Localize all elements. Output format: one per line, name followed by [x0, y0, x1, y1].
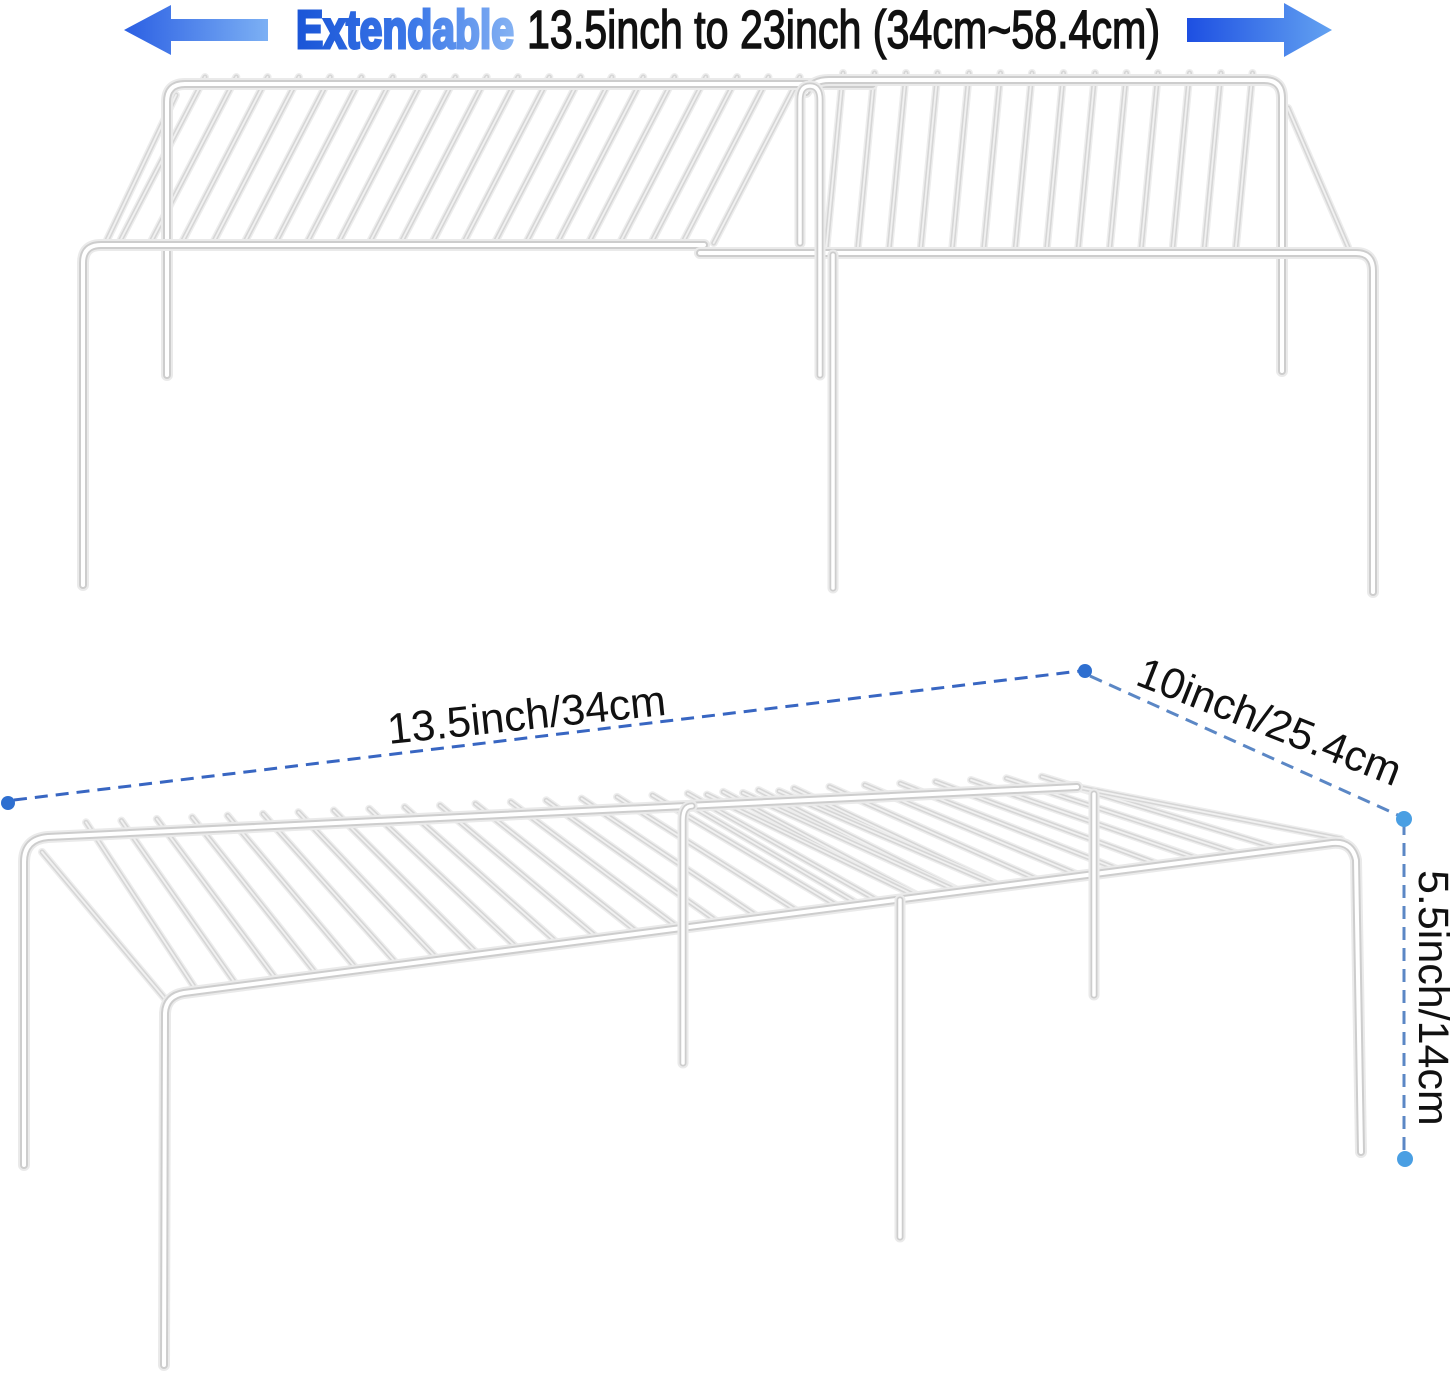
svg-text:Extendable: Extendable	[296, 1, 514, 61]
svg-text:13.5inch/34cm: 13.5inch/34cm	[385, 677, 668, 754]
svg-text:13.5inch to 23inch (34cm~58.4c: 13.5inch to 23inch (34cm~58.4cm)	[527, 1, 1160, 61]
svg-text:5.5inch/14cm: 5.5inch/14cm	[1409, 870, 1454, 1126]
svg-text:10inch/25.4cm: 10inch/25.4cm	[1130, 649, 1408, 796]
